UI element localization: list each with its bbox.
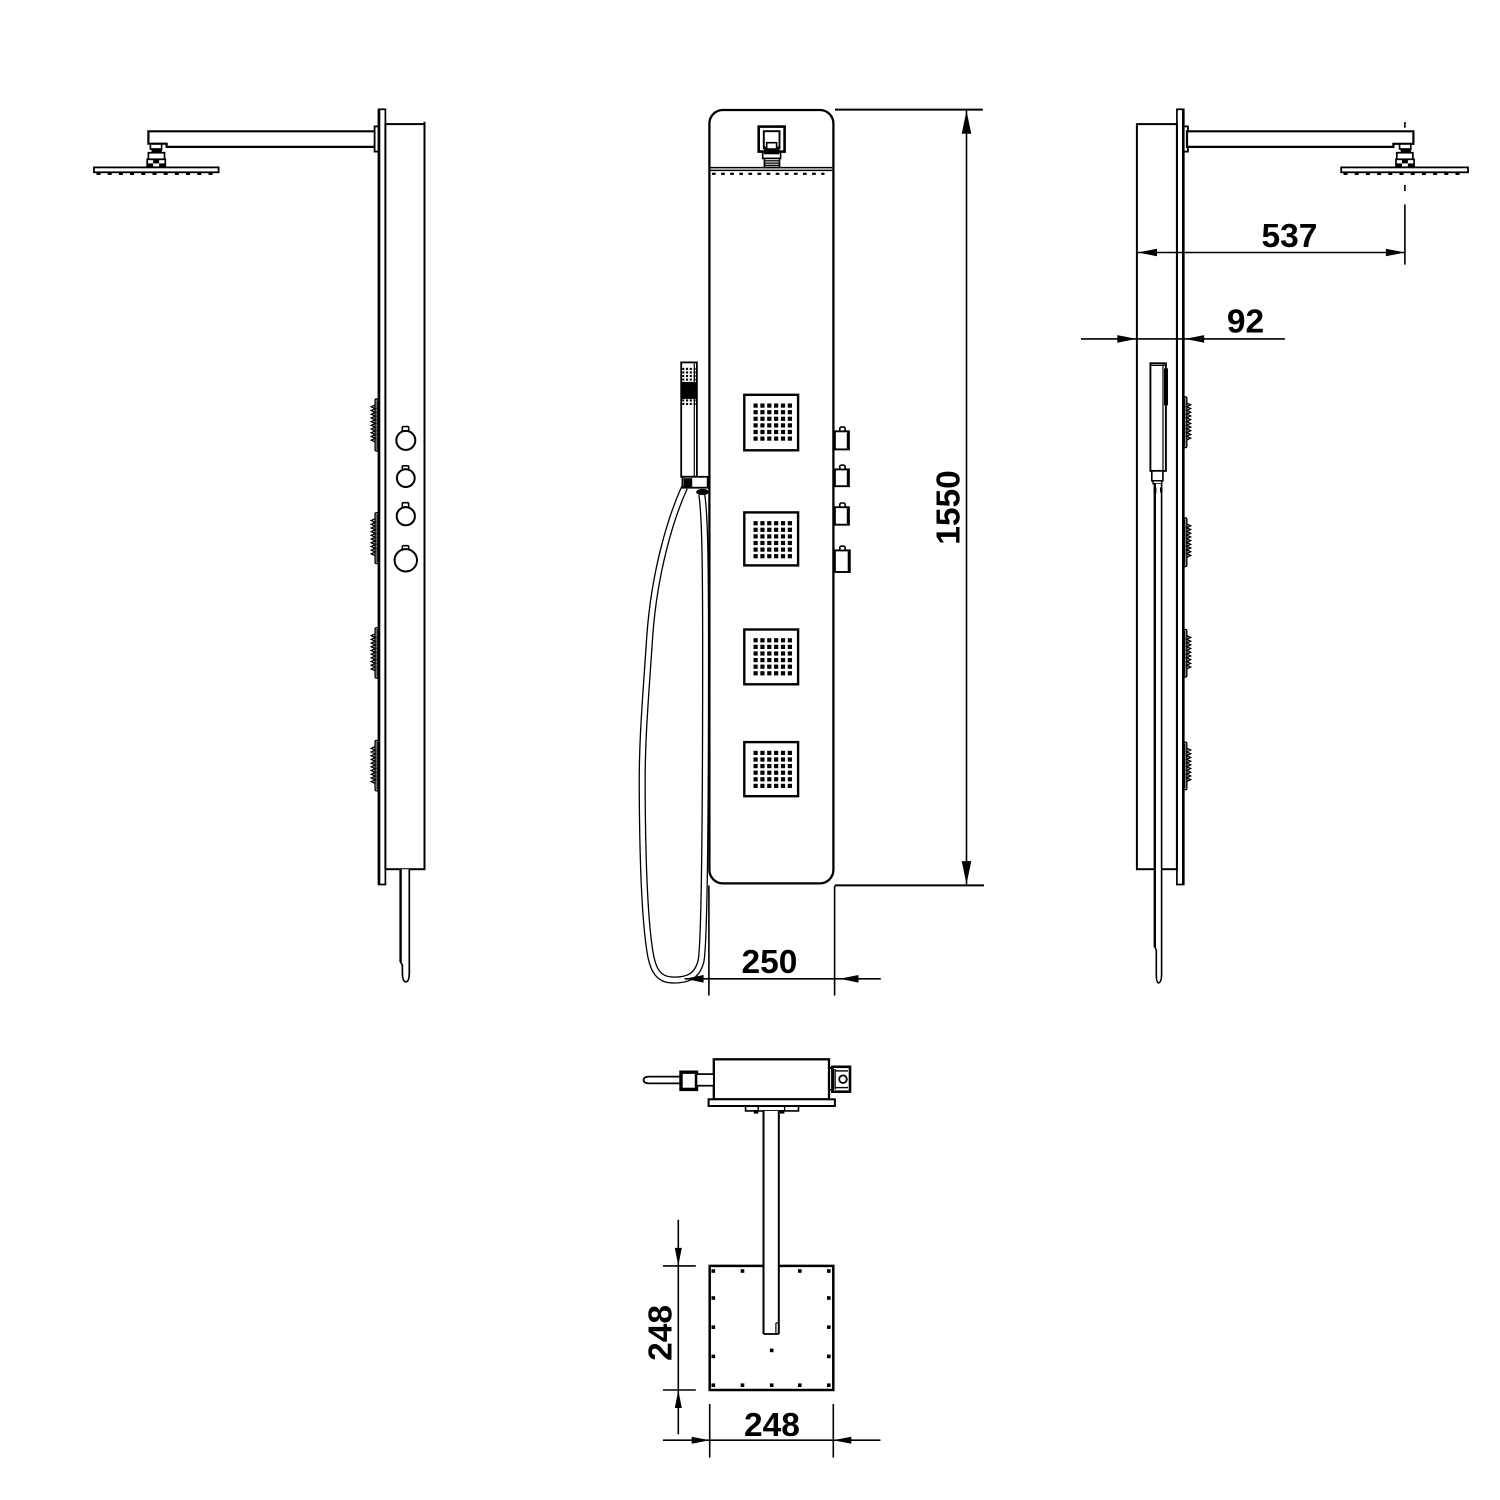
svg-text:248: 248	[643, 1305, 680, 1361]
svg-text:250: 250	[741, 944, 797, 981]
svg-text:1550: 1550	[930, 470, 967, 545]
svg-text:92: 92	[1227, 303, 1264, 340]
svg-text:248: 248	[744, 1407, 800, 1444]
svg-text:537: 537	[1261, 218, 1317, 255]
